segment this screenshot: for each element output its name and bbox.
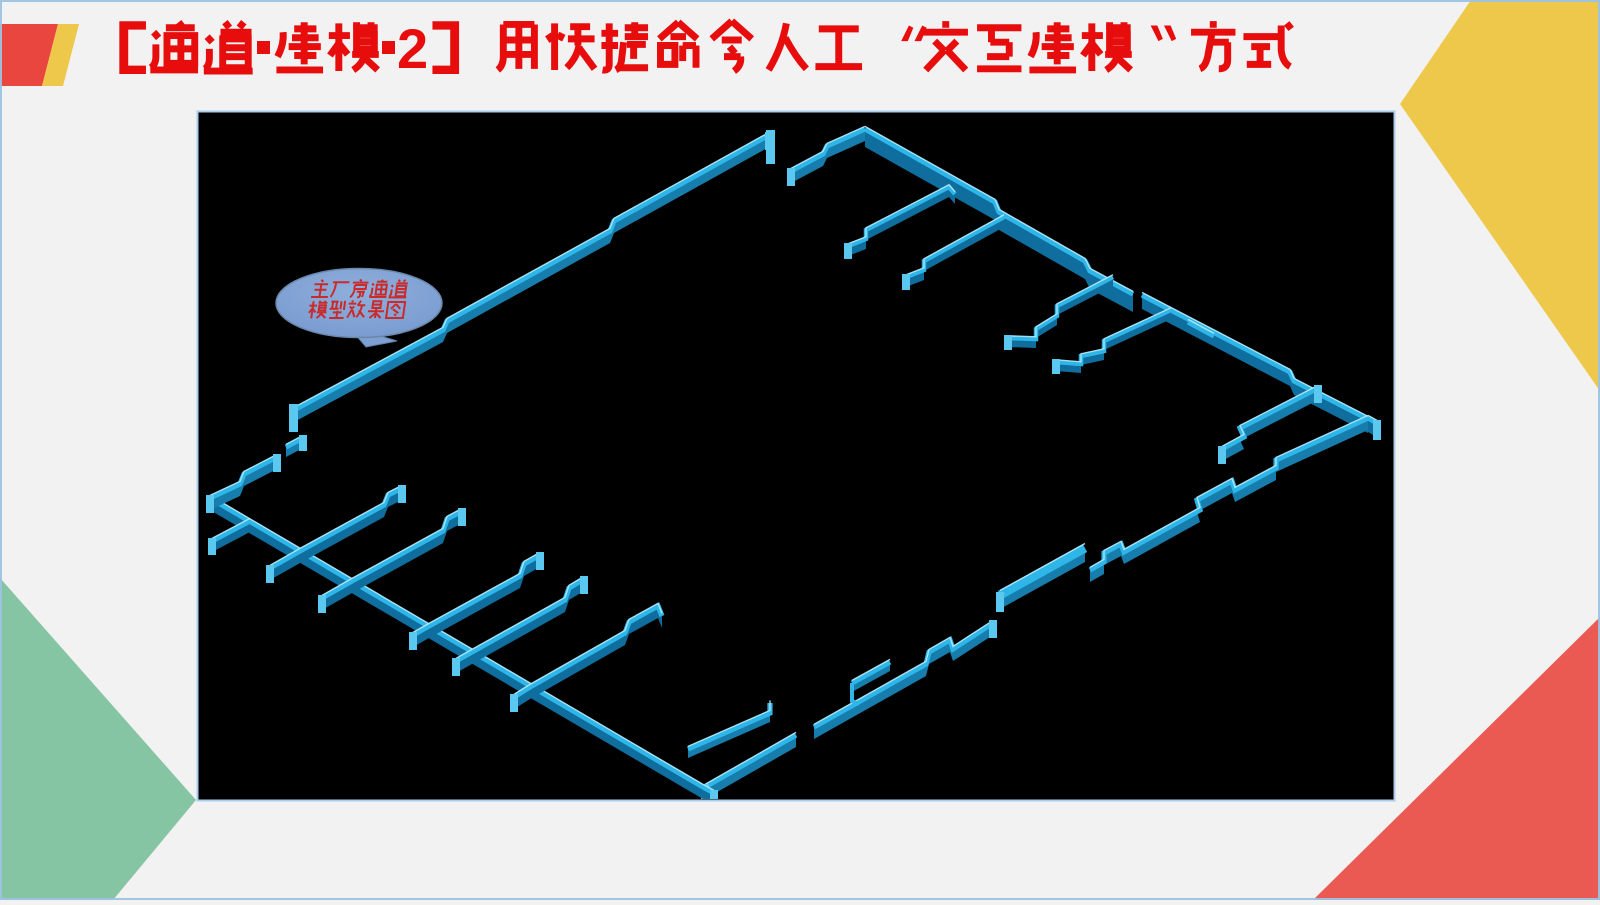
svg-text:2: 2 <box>397 17 428 80</box>
